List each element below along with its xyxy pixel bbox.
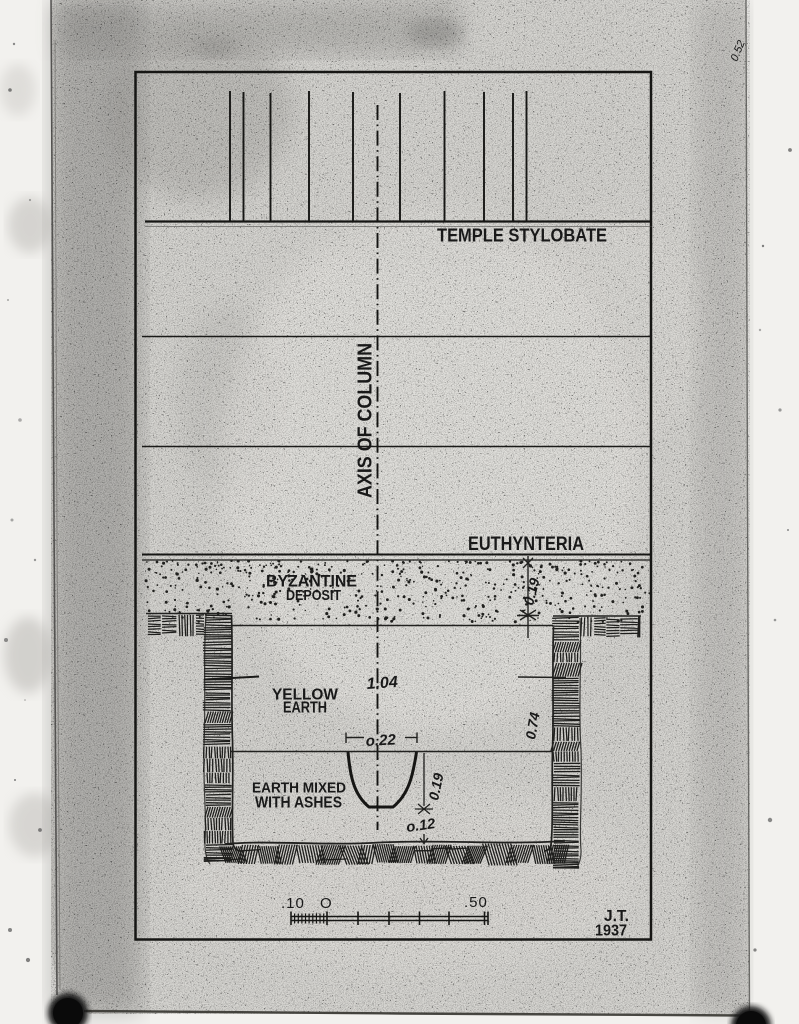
svg-text:1.04: 1.04 bbox=[366, 674, 398, 693]
svg-text:.50: .50 bbox=[464, 894, 488, 911]
svg-text:.10: .10 bbox=[281, 895, 305, 912]
svg-text:DEPOSIT: DEPOSIT bbox=[286, 587, 341, 604]
svg-text:TEMPLE STYLOBATE: TEMPLE STYLOBATE bbox=[437, 226, 607, 246]
svg-text:AXIS OF COLUMN: AXIS OF COLUMN bbox=[355, 343, 377, 498]
svg-text:1937: 1937 bbox=[595, 923, 627, 940]
svg-text:EUTHYNTERIA: EUTHYNTERIA bbox=[468, 534, 584, 555]
svg-text:EARTH: EARTH bbox=[283, 700, 327, 717]
svg-text:o.22: o.22 bbox=[365, 731, 397, 750]
svg-text:O: O bbox=[320, 895, 332, 912]
svg-text:WITH ASHES: WITH ASHES bbox=[255, 795, 342, 812]
